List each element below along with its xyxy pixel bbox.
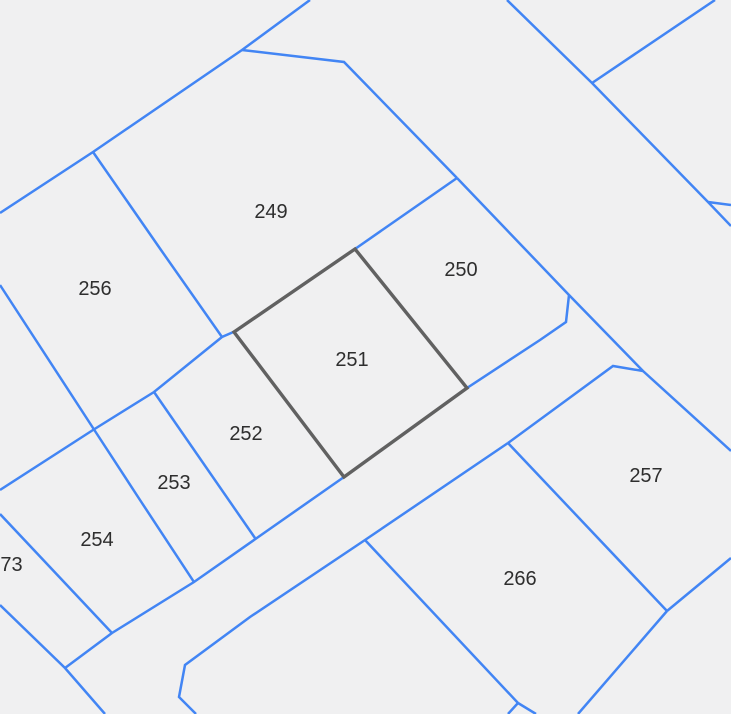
parcel-label-249: 249 [254, 201, 287, 223]
parcel-boundary-upper-left-long-diagonal [0, 0, 310, 213]
parcel-map: 249250251252253254256257266573 [0, 0, 731, 714]
parcel-label-252: 252 [229, 423, 262, 445]
parcel-label-254: 254 [80, 529, 113, 551]
parcel-boundary-mid-long-diagonal-ne [457, 178, 731, 451]
parcel-label-256: 256 [78, 278, 111, 300]
parcel-boundary-top-right-long-diagonal [507, 0, 731, 226]
parcel-boundary-boundary-249-250-top [242, 50, 457, 178]
parcel-label-257: 257 [629, 465, 662, 487]
parcel-label-250: 250 [444, 259, 477, 281]
parcel-boundary-boundary-266-se [578, 611, 667, 714]
parcel-boundary-boundary-257-se [667, 558, 731, 611]
parcel-boundary-bottom-spur-right [518, 703, 536, 714]
parcel-boundary-boundary-266-nw [365, 540, 518, 703]
parcel-boundary-boundary-250-nw [355, 178, 457, 249]
parcel-boundary-divider-573-sw [0, 605, 105, 714]
map-canvas[interactable]: 249250251252253254256257266573 [0, 0, 731, 714]
parcel-boundary-divider-252-253 [154, 392, 255, 538]
parcel-boundary-road-se-edge [179, 443, 508, 714]
parcel-boundary-bottom-spur-left [508, 703, 518, 714]
parcel-boundary-zigzag-east-of-251 [467, 295, 569, 388]
parcel-label-573: 573 [0, 554, 23, 576]
parcel-label-266: 266 [503, 568, 536, 590]
parcel-boundary-top-right-v-branch [592, 0, 715, 83]
parcel-label-253: 253 [157, 472, 190, 494]
parcel-boundary-divider-249-256 [93, 152, 222, 337]
parcel-boundary-notch-257-top [508, 366, 643, 443]
parcel-label-251: 251 [335, 349, 368, 371]
